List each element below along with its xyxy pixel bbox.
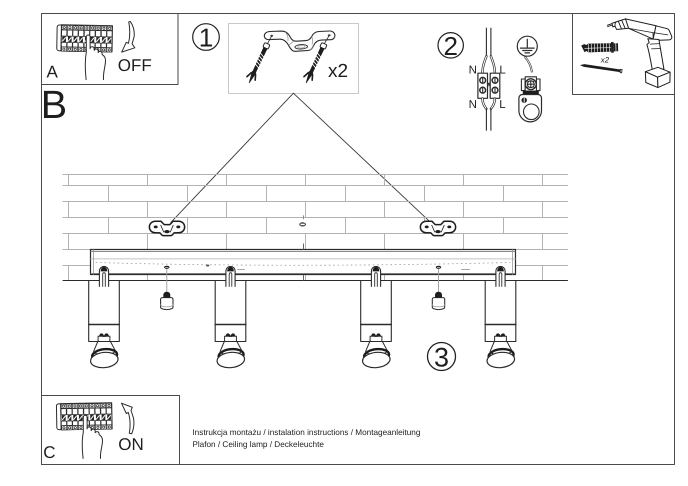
svg-text:N: N [469, 99, 477, 111]
svg-text:A: A [47, 63, 59, 82]
svg-text:B: B [41, 83, 67, 127]
svg-text:OFF: OFF [118, 56, 152, 75]
svg-text:Instrukcja montażu / instalati: Instrukcja montażu / instalation instruc… [192, 428, 420, 437]
svg-text:L: L [499, 65, 506, 77]
svg-text:ON: ON [118, 435, 144, 454]
svg-text:L: L [499, 99, 506, 111]
svg-text:3: 3 [434, 343, 449, 373]
svg-text:x2: x2 [600, 56, 610, 65]
svg-text:Plafon / Ceiling lamp / Deckel: Plafon / Ceiling lamp / Deckeleuchte [192, 440, 324, 449]
svg-text:C: C [43, 443, 55, 462]
svg-text:2: 2 [443, 31, 457, 61]
svg-text:N: N [469, 65, 477, 77]
svg-text:1: 1 [199, 23, 213, 53]
svg-text:x2: x2 [328, 61, 348, 82]
